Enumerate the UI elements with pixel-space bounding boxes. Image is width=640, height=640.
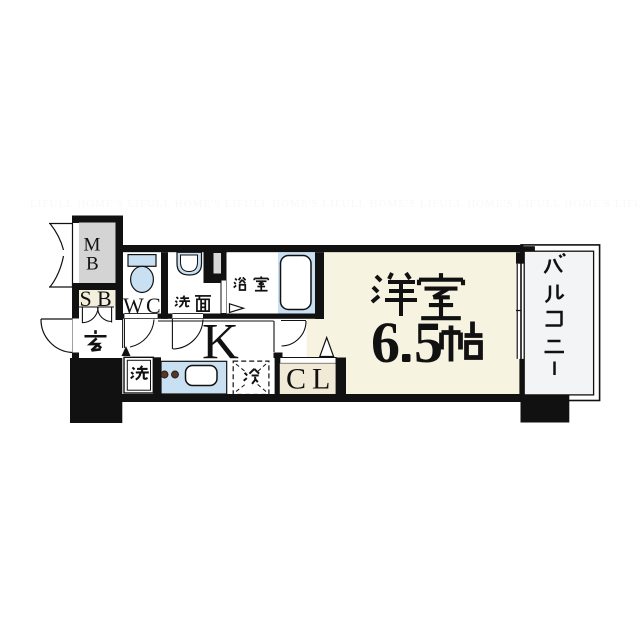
svg-text:L: L xyxy=(312,363,330,396)
svg-text:C: C xyxy=(286,363,306,396)
svg-text:5: 5 xyxy=(414,310,443,375)
svg-text:B: B xyxy=(86,254,99,275)
svg-text:M: M xyxy=(84,235,101,256)
svg-text:6: 6 xyxy=(371,310,400,375)
svg-text:LIFULL HOME'S LIFULL HOME'S LI: LIFULL HOME'S LIFULL HOME'S LIFULL HOME'… xyxy=(30,198,640,210)
